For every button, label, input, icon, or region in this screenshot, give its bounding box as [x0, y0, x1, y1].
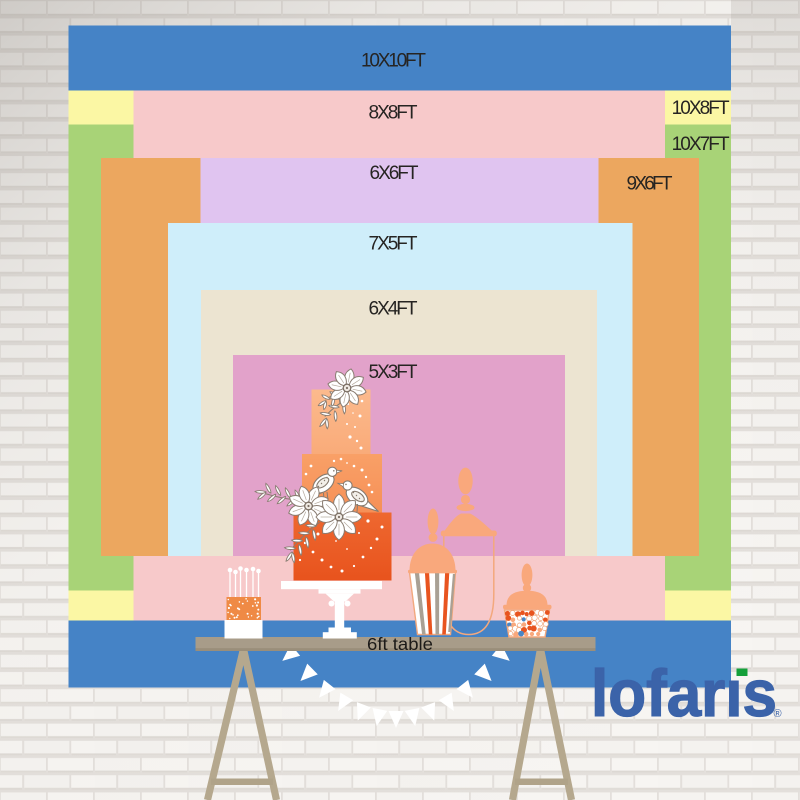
- svg-text:10X7FT: 10X7FT: [672, 134, 730, 155]
- svg-text:6X4FT: 6X4FT: [369, 299, 418, 320]
- svg-text:10X10FT: 10X10FT: [361, 51, 426, 72]
- svg-text:®: ®: [774, 708, 782, 720]
- svg-text:6X6FT: 6X6FT: [370, 163, 419, 184]
- svg-text:lofarıs: lofarıs: [591, 656, 777, 730]
- svg-text:7X5FT: 7X5FT: [369, 234, 418, 255]
- svg-text:9X6FT: 9X6FT: [627, 174, 673, 195]
- svg-text:8X8FT: 8X8FT: [369, 103, 418, 124]
- svg-text:5X3FT: 5X3FT: [369, 362, 418, 383]
- svg-text:6ft table: 6ft table: [367, 634, 433, 654]
- svg-text:10X8FT: 10X8FT: [672, 98, 730, 119]
